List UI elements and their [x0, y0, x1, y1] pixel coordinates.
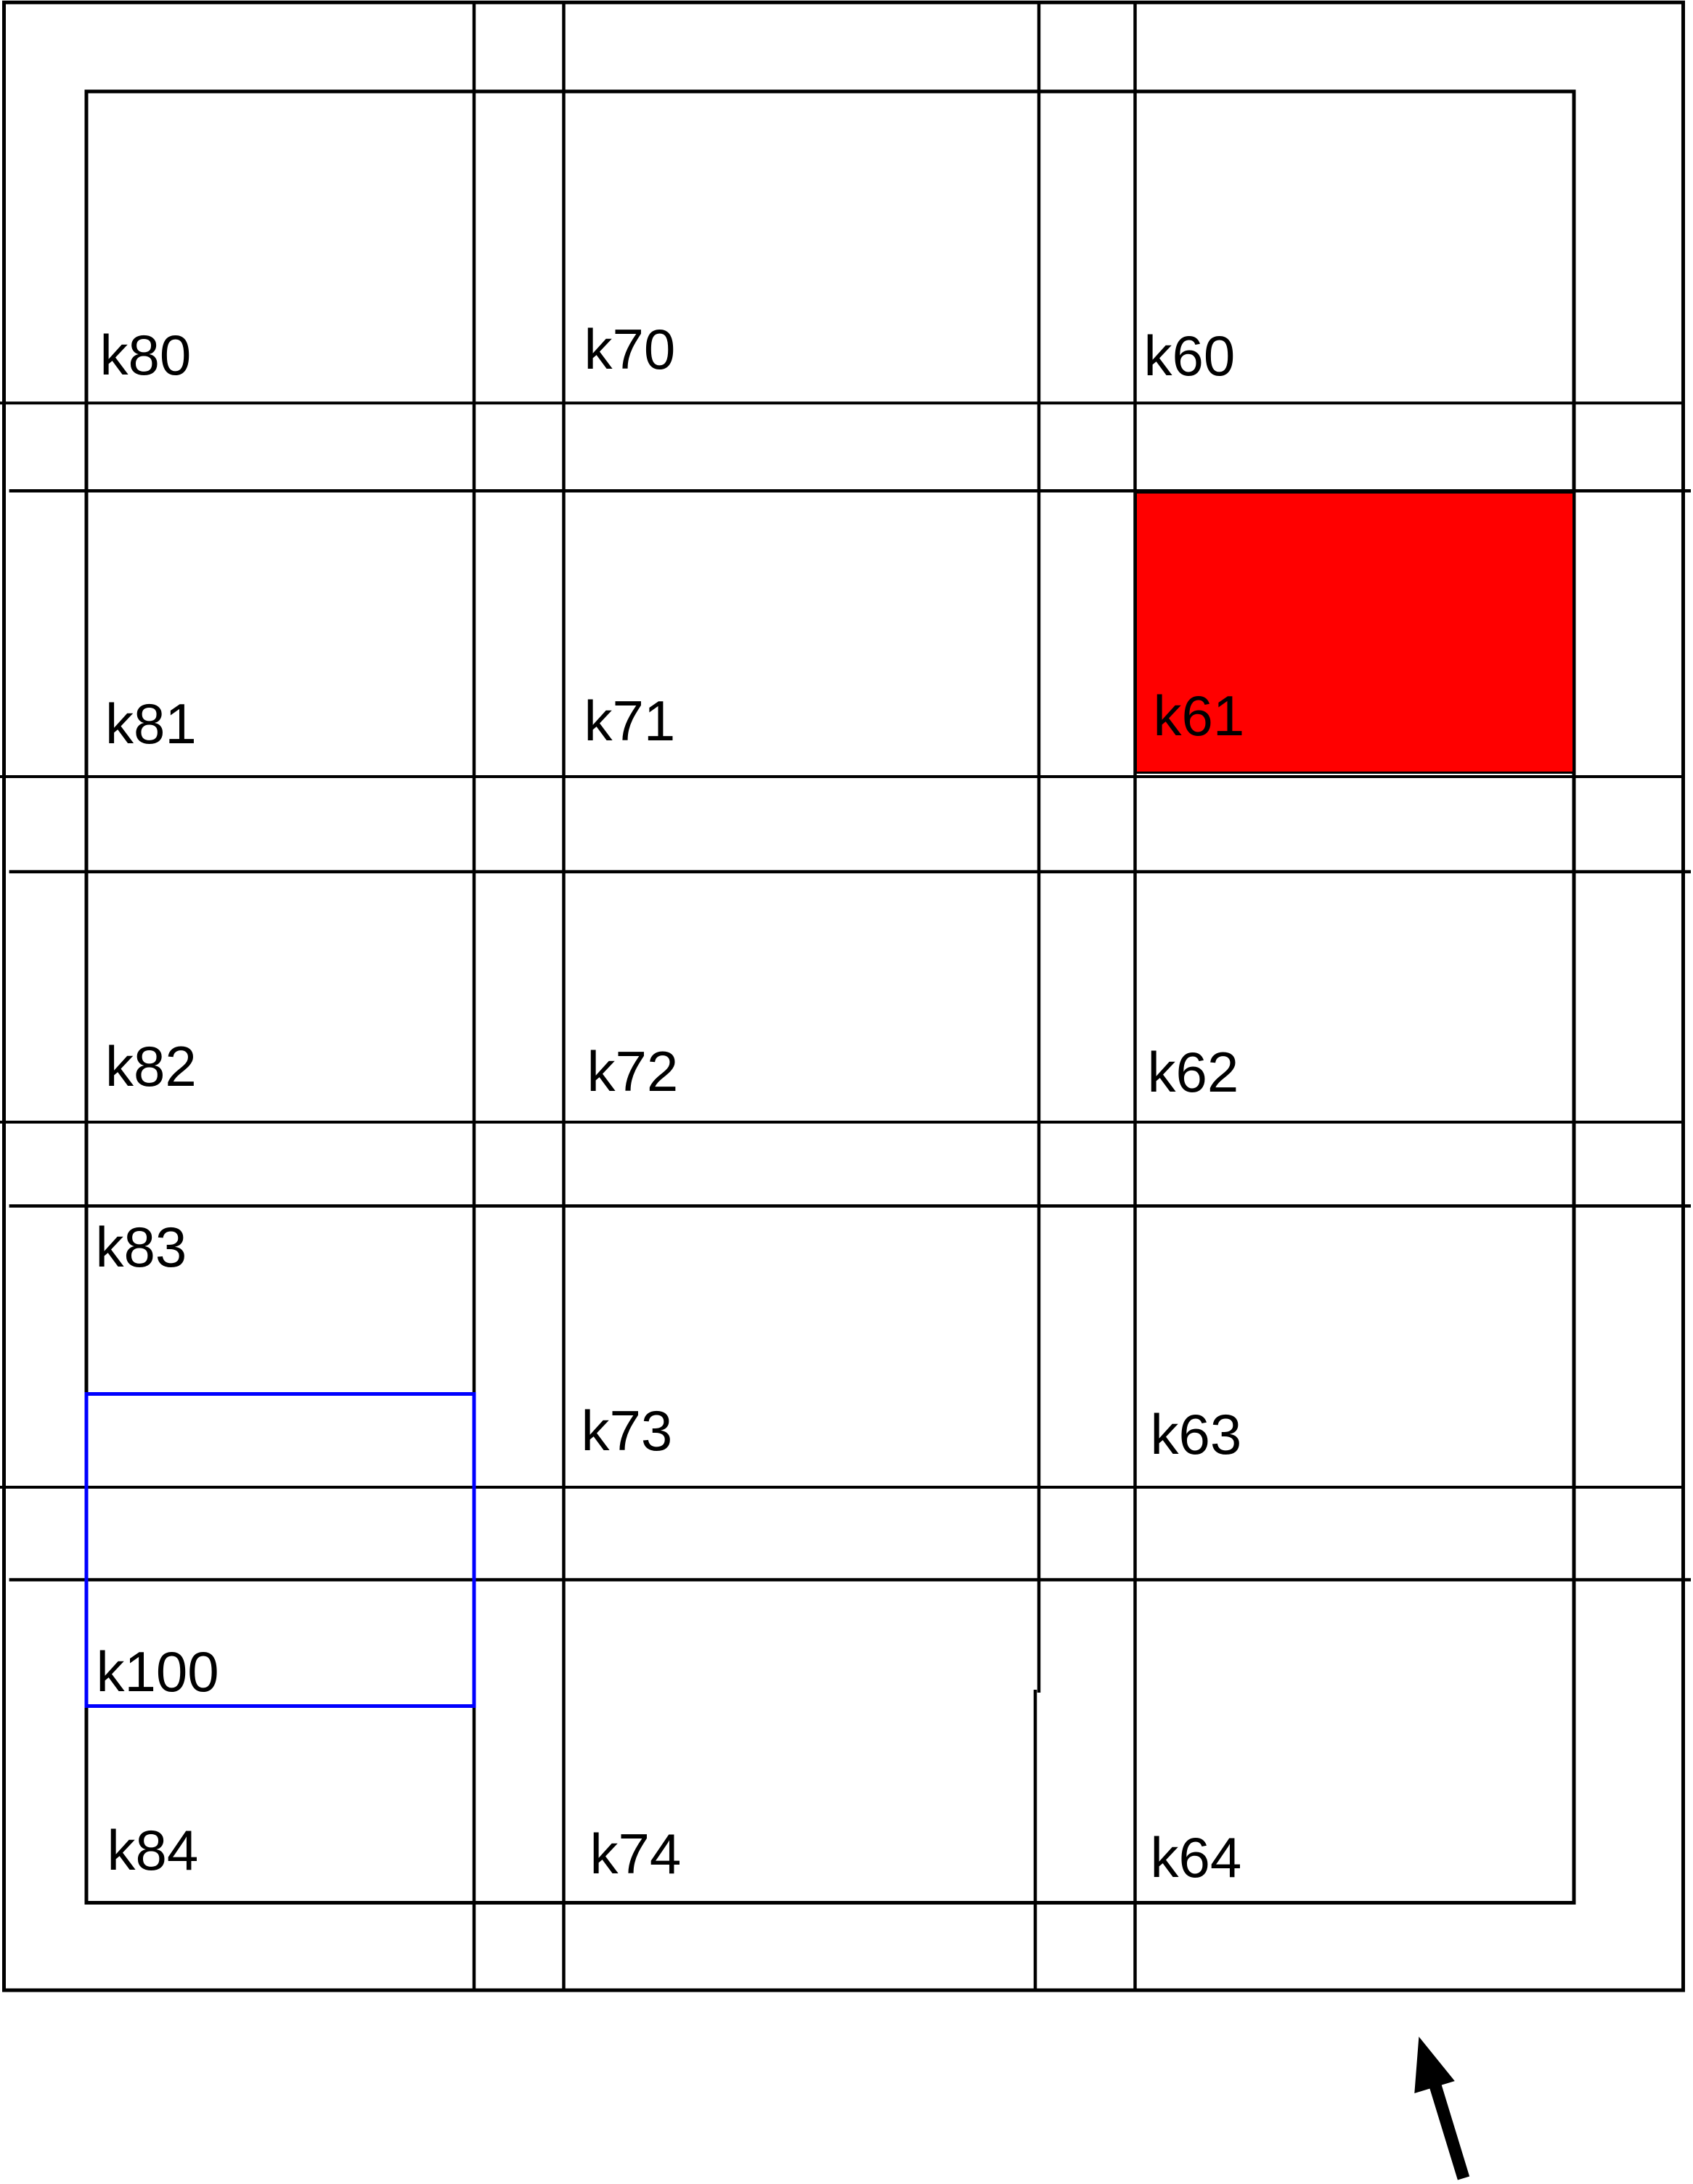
svg-text:k81: k81 [105, 692, 197, 756]
svg-text:k71: k71 [584, 689, 676, 753]
svg-text:k80: k80 [100, 323, 192, 387]
svg-text:k63: k63 [1151, 1402, 1242, 1466]
svg-text:k62: k62 [1148, 1040, 1239, 1104]
svg-text:k82: k82 [105, 1034, 197, 1098]
svg-text:k61: k61 [1154, 684, 1245, 748]
svg-text:k83: k83 [96, 1215, 187, 1279]
svg-text:k60: k60 [1144, 324, 1236, 388]
svg-text:k73: k73 [582, 1399, 673, 1463]
svg-text:k72: k72 [587, 1039, 679, 1103]
svg-text:k100: k100 [97, 1640, 219, 1704]
svg-text:k70: k70 [584, 317, 676, 381]
svg-text:k74: k74 [590, 1822, 682, 1886]
svg-text:k84: k84 [107, 1818, 199, 1882]
svg-text:k64: k64 [1151, 1825, 1242, 1889]
